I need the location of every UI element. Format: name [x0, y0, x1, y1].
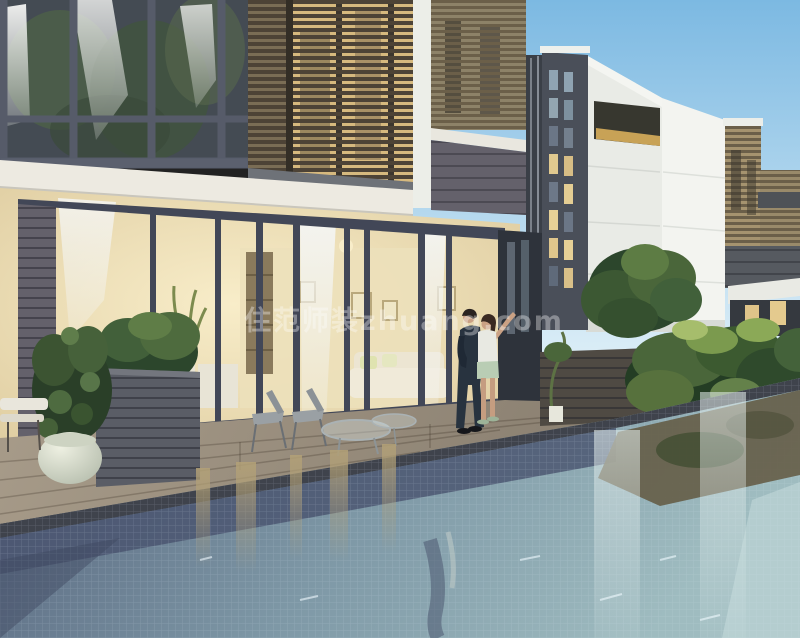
rendering-photo: 住范师装zhuang.com [0, 0, 800, 638]
upper-glass-window-wall [0, 0, 248, 168]
scene-canvas: 住范师装zhuang.com [0, 0, 800, 638]
small-white-pot [549, 406, 563, 422]
white-corner-pillar [413, 0, 431, 208]
gray-planter-box [96, 312, 200, 487]
watermark-text: 住范师装zhuang.com [244, 305, 564, 337]
white-lounge [0, 398, 48, 410]
secondary-louver-screen [431, 0, 526, 215]
couple-reflection [430, 540, 438, 638]
louver-screen-box [248, 0, 425, 197]
